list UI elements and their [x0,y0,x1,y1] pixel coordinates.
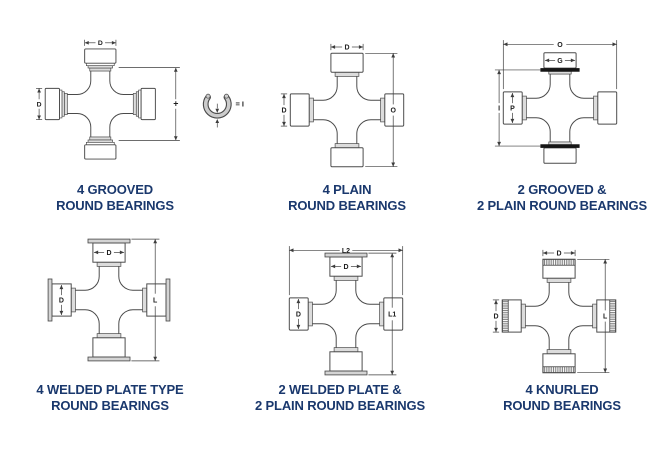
caption-line: ROUND BEARINGS [442,398,670,414]
caption-line: 2 GROOVED & [442,182,670,198]
ujoint-cross-diagram: DD+= I [32,36,257,172]
diagram-4-grooved-round-bearings: DD+= I [32,36,257,172]
caption-line: 4 GROOVED [0,182,235,198]
svg-text:L: L [603,313,608,320]
caption-line: 2 PLAIN ROUND BEARINGS [220,398,460,414]
svg-text:O: O [557,42,563,49]
caption-2-welded-2-plain: 2 WELDED PLATE & 2 PLAIN ROUND BEARINGS [220,382,460,413]
caption-line: 4 KNURLED [442,382,670,398]
diagram-4-welded-plate-round-bearings: DDL [39,230,179,370]
caption-line: 2 PLAIN ROUND BEARINGS [442,198,670,214]
svg-text:D: D [59,297,64,304]
bearing-types-sheet: DD+= I DDO OGIP DDL L2DDL1 DDL 4 GROOVED… [0,0,670,450]
svg-text:I: I [498,105,500,112]
caption-4-welded-plate: 4 WELDED PLATE TYPE ROUND BEARINGS [0,382,230,413]
svg-text:+: + [173,98,178,108]
svg-text:= I: = I [235,99,244,108]
ujoint-cross-diagram: DDL [489,246,629,386]
svg-text:D: D [296,311,301,318]
svg-text:D: D [344,44,349,51]
caption-2-grooved-2-plain: 2 GROOVED & 2 PLAIN ROUND BEARINGS [442,182,670,213]
caption-line: 4 WELDED PLATE TYPE [0,382,230,398]
ujoint-cross-diagram: DDL [39,230,179,370]
caption-line: ROUND BEARINGS [227,198,467,214]
svg-text:D: D [98,40,103,47]
diagram-4-plain-round-bearings: DDO [277,40,417,180]
ujoint-cross-diagram: L2DDL1 [276,244,416,384]
diagram-4-knurled-round-bearings: DDL [489,246,629,386]
svg-text:D: D [343,264,348,271]
diagram-2-grooved-2-plain-round-bearings: OGIP [490,38,630,178]
caption-line: ROUND BEARINGS [0,398,230,414]
caption-line: 4 PLAIN [227,182,467,198]
svg-text:L: L [153,297,158,304]
svg-text:D: D [37,101,42,108]
svg-text:D: D [493,313,498,320]
svg-text:L2: L2 [342,248,350,255]
caption-4-knurled: 4 KNURLED ROUND BEARINGS [442,382,670,413]
ujoint-cross-diagram: DDO [277,40,417,180]
svg-text:D: D [106,250,111,257]
svg-text:G: G [557,58,563,65]
svg-text:P: P [510,105,515,112]
svg-text:D: D [556,250,561,257]
svg-text:L1: L1 [388,311,396,318]
caption-4-grooved: 4 GROOVED ROUND BEARINGS [0,182,235,213]
ujoint-cross-diagram: OGIP [490,38,630,178]
caption-line: 2 WELDED PLATE & [220,382,460,398]
svg-text:O: O [390,107,396,114]
svg-text:D: D [281,107,286,114]
caption-line: ROUND BEARINGS [0,198,235,214]
diagram-2-welded-2-plain-round-bearings: L2DDL1 [276,244,416,384]
caption-4-plain: 4 PLAIN ROUND BEARINGS [227,182,467,213]
